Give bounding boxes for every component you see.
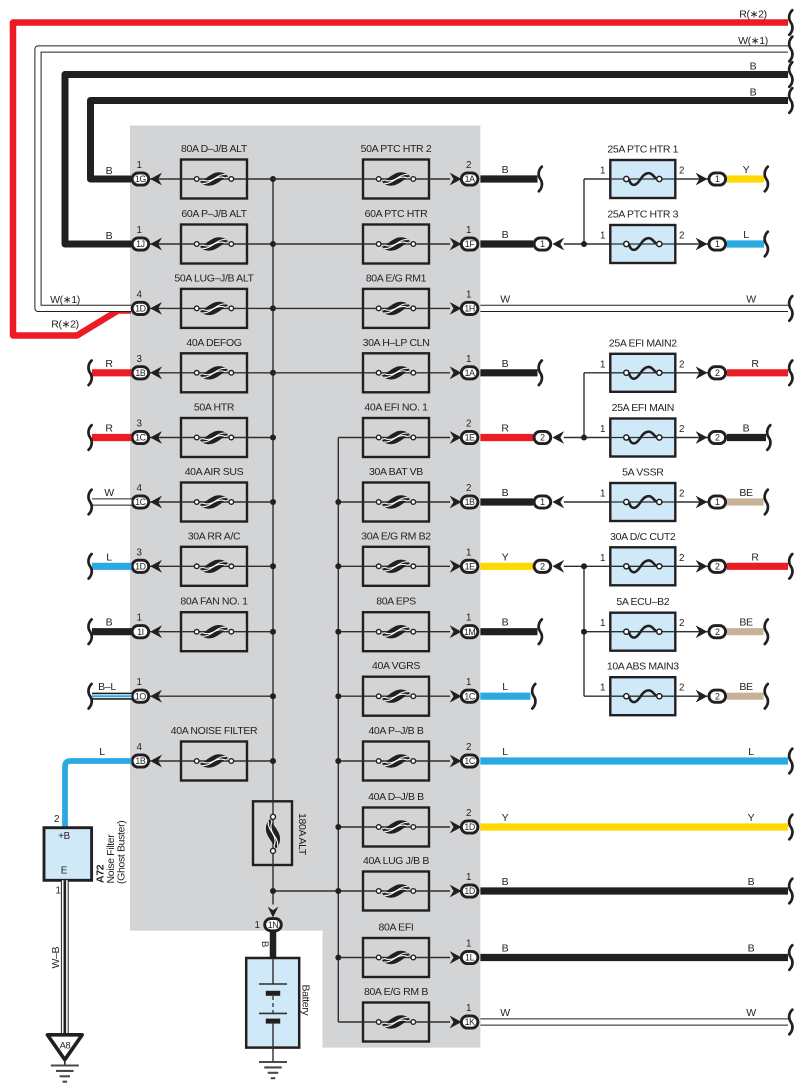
svg-text:W: W bbox=[500, 1007, 510, 1019]
svg-text:30A D/C CUT2: 30A D/C CUT2 bbox=[610, 531, 676, 543]
svg-text:1: 1 bbox=[466, 1003, 471, 1014]
svg-text:30A H–LP CLN: 30A H–LP CLN bbox=[363, 337, 430, 349]
svg-text:40A EFI NO. 1: 40A EFI NO. 1 bbox=[364, 402, 428, 414]
svg-text:1: 1 bbox=[600, 359, 605, 370]
svg-text:B: B bbox=[106, 165, 113, 177]
svg-text:W–B: W–B bbox=[50, 946, 62, 968]
svg-text:2: 2 bbox=[679, 618, 684, 629]
svg-text:2: 2 bbox=[715, 627, 720, 637]
svg-text:1M: 1M bbox=[464, 627, 476, 637]
svg-text:R(∗2): R(∗2) bbox=[51, 319, 78, 331]
svg-text:1: 1 bbox=[715, 174, 720, 184]
svg-text:1: 1 bbox=[600, 683, 605, 694]
svg-text:1K: 1K bbox=[465, 1017, 476, 1027]
svg-text:1: 1 bbox=[600, 424, 605, 435]
svg-text:30A E/G RM B2: 30A E/G RM B2 bbox=[361, 530, 431, 542]
svg-text:R: R bbox=[105, 358, 113, 370]
svg-text:BE: BE bbox=[739, 681, 753, 693]
svg-text:3: 3 bbox=[136, 419, 142, 430]
svg-text:Y: Y bbox=[502, 812, 509, 824]
svg-text:2: 2 bbox=[679, 424, 684, 435]
svg-text:1D: 1D bbox=[135, 562, 146, 572]
svg-text:B: B bbox=[502, 876, 509, 888]
svg-text:L: L bbox=[502, 746, 508, 758]
svg-text:B: B bbox=[748, 876, 755, 888]
svg-text:1: 1 bbox=[466, 289, 471, 300]
svg-text:1: 1 bbox=[466, 677, 471, 688]
svg-text:1: 1 bbox=[600, 618, 605, 629]
svg-text:2: 2 bbox=[679, 683, 684, 694]
svg-text:1: 1 bbox=[136, 677, 141, 688]
svg-text:B–L: B–L bbox=[98, 681, 116, 693]
svg-text:80A EFI: 80A EFI bbox=[379, 922, 414, 934]
svg-text:2: 2 bbox=[540, 562, 545, 572]
svg-text:1A: 1A bbox=[465, 174, 476, 184]
svg-text:B: B bbox=[502, 617, 509, 629]
svg-text:R: R bbox=[105, 423, 113, 435]
svg-text:80A FAN NO. 1: 80A FAN NO. 1 bbox=[180, 596, 248, 608]
svg-text:1D: 1D bbox=[135, 304, 146, 314]
svg-text:Y: Y bbox=[502, 551, 509, 563]
svg-text:2: 2 bbox=[466, 483, 471, 494]
svg-text:1A: 1A bbox=[465, 368, 476, 378]
svg-text:1: 1 bbox=[254, 920, 259, 931]
svg-text:5A VSSR: 5A VSSR bbox=[622, 467, 664, 479]
svg-text:L: L bbox=[743, 229, 749, 241]
svg-text:1: 1 bbox=[600, 166, 605, 177]
svg-text:1: 1 bbox=[136, 225, 141, 236]
svg-text:1: 1 bbox=[600, 553, 605, 564]
svg-text:180A ALT: 180A ALT bbox=[296, 813, 308, 856]
svg-text:L: L bbox=[748, 746, 754, 758]
svg-text:1G: 1G bbox=[135, 174, 147, 184]
svg-text:1E: 1E bbox=[465, 433, 476, 443]
svg-text:2: 2 bbox=[54, 814, 59, 825]
svg-text:W(∗1): W(∗1) bbox=[738, 35, 768, 47]
svg-text:1B: 1B bbox=[465, 497, 476, 507]
svg-text:2: 2 bbox=[679, 231, 684, 242]
svg-text:2: 2 bbox=[466, 160, 471, 171]
svg-text:B: B bbox=[748, 943, 755, 955]
svg-text:1L: 1L bbox=[465, 953, 475, 963]
svg-text:B: B bbox=[502, 487, 509, 499]
svg-text:Y: Y bbox=[743, 164, 750, 176]
svg-text:60A P–J/B ALT: 60A P–J/B ALT bbox=[181, 208, 247, 220]
svg-text:2: 2 bbox=[715, 368, 720, 378]
svg-text:1I: 1I bbox=[137, 627, 144, 637]
svg-text:R: R bbox=[751, 551, 759, 563]
svg-text:40A AIR SUS: 40A AIR SUS bbox=[185, 466, 244, 478]
svg-text:1J: 1J bbox=[136, 239, 145, 249]
svg-text:B: B bbox=[502, 229, 509, 241]
svg-text:A8: A8 bbox=[60, 1041, 71, 1051]
svg-text:L: L bbox=[99, 746, 105, 758]
svg-text:1C: 1C bbox=[135, 433, 147, 443]
svg-text:1: 1 bbox=[600, 489, 605, 500]
svg-text:L: L bbox=[106, 551, 112, 563]
svg-text:2: 2 bbox=[466, 419, 471, 430]
svg-text:1: 1 bbox=[466, 939, 471, 950]
svg-text:2: 2 bbox=[715, 433, 720, 443]
svg-text:2: 2 bbox=[540, 433, 545, 443]
svg-text:BE: BE bbox=[739, 617, 753, 629]
svg-text:2: 2 bbox=[715, 562, 720, 572]
svg-text:E: E bbox=[61, 865, 68, 876]
svg-text:50A PTC HTR 2: 50A PTC HTR 2 bbox=[361, 143, 432, 155]
svg-text:4: 4 bbox=[136, 483, 142, 494]
svg-text:1: 1 bbox=[55, 886, 60, 897]
svg-text:1: 1 bbox=[466, 354, 471, 365]
svg-text:80A EPS: 80A EPS bbox=[376, 596, 416, 608]
svg-text:1: 1 bbox=[466, 872, 471, 883]
svg-text:80A D–J/B ALT: 80A D–J/B ALT bbox=[181, 143, 248, 155]
svg-text:B: B bbox=[502, 358, 509, 370]
svg-text:25A PTC HTR 1: 25A PTC HTR 1 bbox=[607, 144, 678, 156]
svg-text:Battery: Battery bbox=[300, 985, 312, 1017]
svg-text:40A DEFOG: 40A DEFOG bbox=[186, 337, 241, 349]
svg-text:1: 1 bbox=[466, 547, 471, 558]
svg-text:1D: 1D bbox=[464, 886, 475, 896]
svg-text:2: 2 bbox=[679, 359, 684, 370]
svg-text:R: R bbox=[501, 423, 509, 435]
svg-text:40A NOISE FILTER: 40A NOISE FILTER bbox=[171, 725, 258, 737]
svg-text:1B: 1B bbox=[135, 368, 146, 378]
svg-text:40A LUG J/B B: 40A LUG J/B B bbox=[363, 855, 429, 867]
svg-text:B: B bbox=[502, 164, 509, 176]
svg-text:25A EFI MAIN2: 25A EFI MAIN2 bbox=[609, 337, 677, 349]
svg-text:B: B bbox=[750, 87, 757, 99]
svg-text:W(∗1): W(∗1) bbox=[50, 294, 80, 306]
svg-text:1: 1 bbox=[600, 231, 605, 242]
svg-text:1O: 1O bbox=[135, 691, 147, 701]
svg-text:10A ABS MAIN3: 10A ABS MAIN3 bbox=[607, 661, 679, 673]
svg-text:50A HTR: 50A HTR bbox=[194, 402, 235, 414]
svg-text:B: B bbox=[106, 617, 113, 629]
svg-text:2: 2 bbox=[715, 691, 720, 701]
svg-text:(Ghost Buster): (Ghost Buster) bbox=[115, 821, 127, 884]
svg-text:B: B bbox=[743, 423, 750, 435]
svg-text:40A VGRS: 40A VGRS bbox=[372, 660, 420, 672]
svg-text:2: 2 bbox=[679, 166, 684, 177]
svg-text:1C: 1C bbox=[464, 691, 476, 701]
svg-text:1: 1 bbox=[136, 160, 141, 171]
svg-text:R: R bbox=[751, 358, 759, 370]
svg-text:3: 3 bbox=[136, 547, 142, 558]
svg-text:50A LUG–J/B ALT: 50A LUG–J/B ALT bbox=[174, 272, 254, 284]
svg-text:W: W bbox=[500, 293, 510, 305]
svg-text:1D: 1D bbox=[464, 822, 475, 832]
svg-text:1: 1 bbox=[466, 613, 471, 624]
svg-text:2: 2 bbox=[466, 742, 471, 753]
svg-text:40A P–J/B B: 40A P–J/B B bbox=[368, 725, 423, 737]
svg-text:1: 1 bbox=[715, 497, 720, 507]
svg-text:1: 1 bbox=[540, 497, 545, 507]
svg-text:Y: Y bbox=[748, 812, 755, 824]
svg-text:BE: BE bbox=[739, 487, 753, 499]
svg-text:+B: +B bbox=[58, 831, 70, 842]
svg-text:1B: 1B bbox=[135, 756, 146, 766]
svg-text:B: B bbox=[502, 943, 509, 955]
svg-text:60A PTC HTR: 60A PTC HTR bbox=[365, 208, 428, 220]
svg-text:80A E/G RM B: 80A E/G RM B bbox=[364, 986, 428, 998]
svg-text:W: W bbox=[104, 487, 114, 499]
svg-text:L: L bbox=[502, 681, 508, 693]
svg-text:W: W bbox=[746, 293, 756, 305]
svg-text:2: 2 bbox=[679, 553, 684, 564]
svg-text:B: B bbox=[259, 941, 270, 947]
svg-text:1: 1 bbox=[540, 239, 545, 249]
svg-text:25A PTC HTR 3: 25A PTC HTR 3 bbox=[607, 209, 678, 221]
svg-text:3: 3 bbox=[136, 354, 142, 365]
svg-text:80A E/G RM1: 80A E/G RM1 bbox=[366, 272, 427, 284]
svg-text:W: W bbox=[746, 1007, 756, 1019]
svg-text:1N: 1N bbox=[268, 920, 279, 930]
svg-text:1: 1 bbox=[466, 225, 471, 236]
svg-text:B: B bbox=[106, 230, 113, 242]
svg-text:1: 1 bbox=[715, 239, 720, 249]
svg-text:40A D–J/B B: 40A D–J/B B bbox=[368, 791, 424, 803]
svg-text:1: 1 bbox=[136, 613, 141, 624]
svg-text:1C: 1C bbox=[135, 497, 147, 507]
svg-text:2: 2 bbox=[679, 489, 684, 500]
svg-text:25A EFI MAIN: 25A EFI MAIN bbox=[612, 402, 674, 414]
svg-text:30A BAT VB: 30A BAT VB bbox=[369, 466, 423, 478]
svg-text:30A RR A/C: 30A RR A/C bbox=[188, 530, 241, 542]
svg-text:2: 2 bbox=[466, 808, 471, 819]
svg-text:B: B bbox=[750, 61, 757, 73]
svg-text:1C: 1C bbox=[464, 756, 476, 766]
svg-text:1H: 1H bbox=[464, 304, 475, 314]
svg-text:R(∗2): R(∗2) bbox=[739, 9, 766, 21]
svg-text:1E: 1E bbox=[465, 562, 476, 572]
svg-text:4: 4 bbox=[136, 742, 142, 753]
svg-text:5A ECU–B2: 5A ECU–B2 bbox=[616, 596, 669, 608]
svg-text:1F: 1F bbox=[465, 239, 476, 249]
svg-text:4: 4 bbox=[136, 289, 142, 300]
